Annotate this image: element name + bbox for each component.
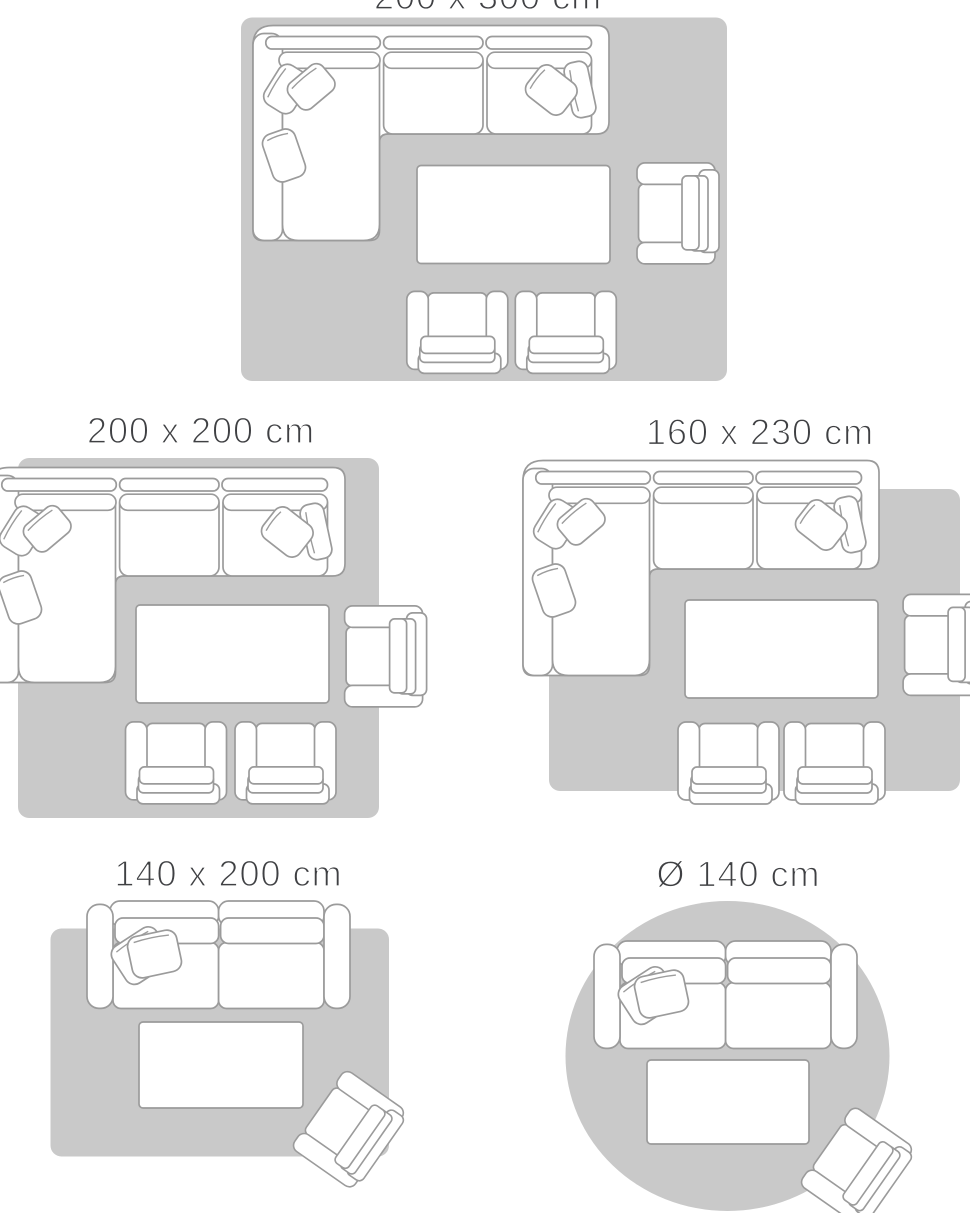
svg-text:200 x 300 cm: 200 x 300 cm	[374, 0, 602, 17]
svg-text:140 x 200 cm: 140 x 200 cm	[114, 853, 342, 894]
svg-text:Ø 140 cm: Ø 140 cm	[656, 854, 820, 895]
svg-text:200 x 200 cm: 200 x 200 cm	[87, 410, 315, 451]
svg-text:160 x 230 cm: 160 x 230 cm	[646, 412, 874, 453]
